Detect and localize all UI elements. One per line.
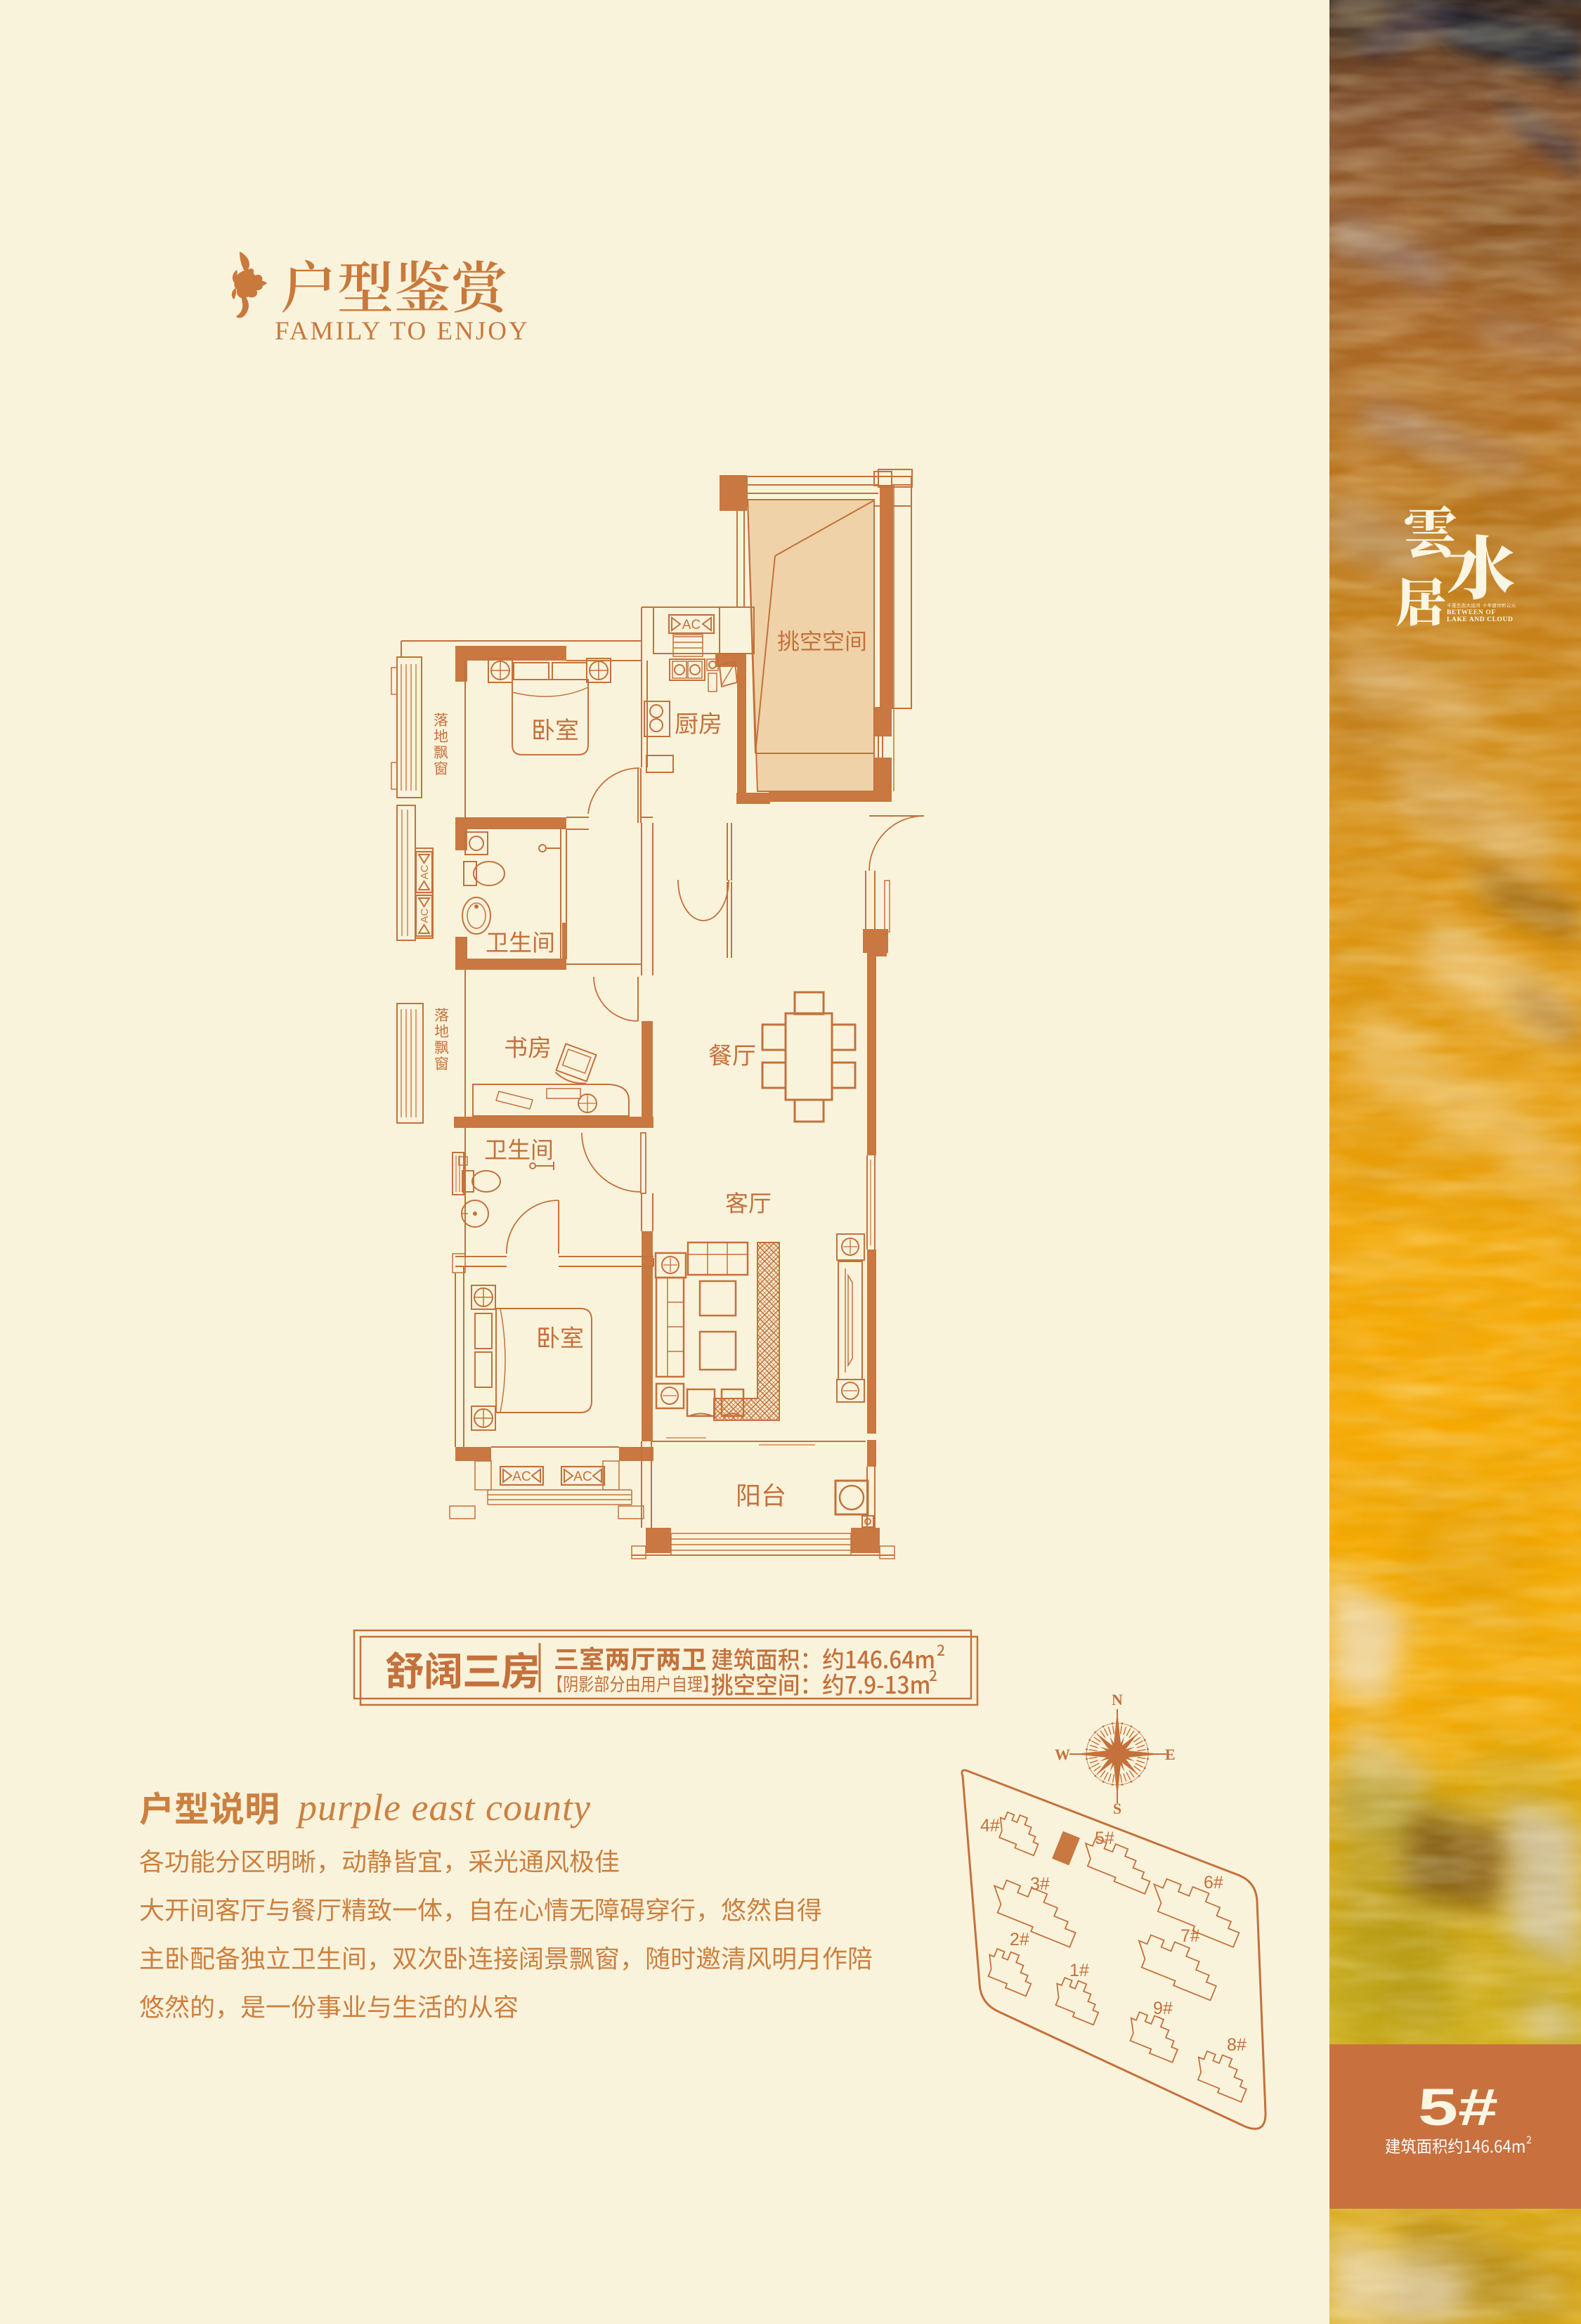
svg-text:AC: AC <box>512 1469 531 1484</box>
svg-text:W: W <box>1055 1746 1070 1763</box>
svg-text:FAMILY TO ENJOY: FAMILY TO ENJOY <box>275 317 530 346</box>
svg-text:AC: AC <box>419 864 431 879</box>
svg-text:AC: AC <box>419 908 431 923</box>
svg-text:8#: 8# <box>1227 2035 1247 2055</box>
svg-text:9#: 9# <box>1153 1999 1173 2018</box>
svg-text:S: S <box>1113 1800 1121 1817</box>
svg-text:AC: AC <box>682 618 701 632</box>
svg-text:1#: 1# <box>1069 1961 1089 1980</box>
svg-text:2#: 2# <box>1010 1930 1029 1949</box>
svg-text:purple east county: purple east county <box>295 1786 591 1829</box>
svg-text:5#: 5# <box>1095 1829 1114 1848</box>
svg-text:5#: 5# <box>1418 2078 1498 2136</box>
svg-text:E: E <box>1165 1746 1176 1763</box>
svg-text:4#: 4# <box>980 1816 1000 1836</box>
svg-text:AC: AC <box>573 1469 592 1484</box>
svg-text:BETWEEN OF: BETWEEN OF <box>1447 609 1496 616</box>
svg-text:7#: 7# <box>1180 1926 1200 1946</box>
svg-text:3#: 3# <box>1030 1874 1050 1894</box>
svg-text:N: N <box>1112 1691 1123 1708</box>
svg-text:6#: 6# <box>1204 1873 1223 1893</box>
svg-text:LAKE AND CLOUD: LAKE AND CLOUD <box>1447 616 1513 623</box>
